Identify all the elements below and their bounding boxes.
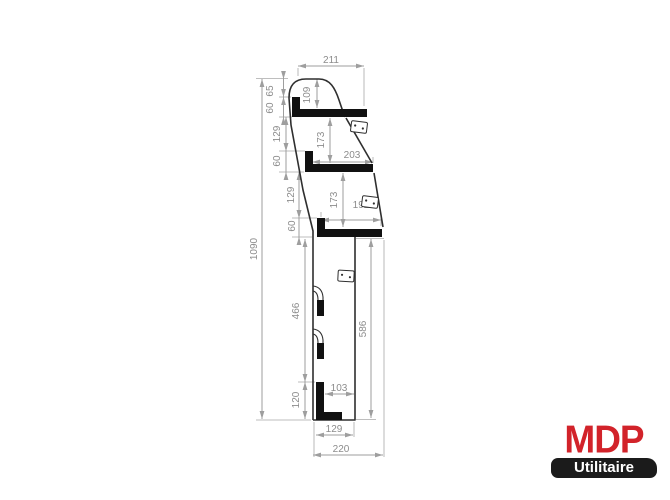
wall-hooks [313, 286, 324, 359]
wall-and-top-edge [289, 79, 345, 420]
dim-gap2: 129 [286, 186, 297, 203]
dim-top-setback: 65 [265, 85, 276, 97]
dim-shelf1-to-shelf2: 173 [316, 131, 327, 148]
bracket-2 [361, 196, 378, 209]
dim-overall-depth: 220 [333, 444, 350, 455]
brand-name: MDP [551, 422, 657, 457]
hook-upper [313, 286, 324, 316]
dim-base-inner-depth: 103 [331, 383, 348, 394]
shelf3-profile [317, 218, 382, 237]
dim-overall-height: 1090 [249, 237, 260, 260]
page: 1090 65 60 129 60 129 60 466 120 109 173… [0, 0, 670, 500]
brand-logo: MDP Utilitaire [551, 423, 657, 478]
dim-base-height: 120 [291, 391, 302, 408]
dim-shelf2-to-shelf3: 173 [329, 191, 340, 208]
dim-shelf1-lip: 60 [265, 102, 276, 114]
dim-shelf2-width: 203 [344, 150, 361, 161]
dim-lower-front-height: 586 [358, 320, 369, 337]
dim-shelf2-lip: 60 [272, 155, 283, 167]
bracket-3 [338, 270, 355, 282]
dim-top-clearance: 109 [302, 86, 313, 103]
dim-lower-left-height: 466 [291, 302, 302, 319]
dim-shelf3-lip: 60 [287, 220, 298, 232]
dim-top-width: 211 [323, 55, 339, 66]
bracket-1 [350, 121, 367, 134]
dim-base-depth: 129 [326, 424, 343, 435]
brand-subtitle: Utilitaire [574, 459, 634, 476]
profile-outline [289, 79, 383, 420]
hook-lower [313, 329, 324, 359]
dim-gap1: 129 [272, 125, 283, 142]
